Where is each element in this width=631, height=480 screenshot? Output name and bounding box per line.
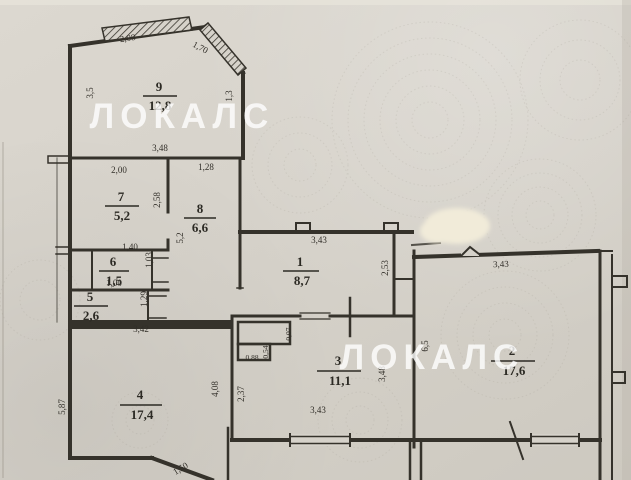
floorplan-drawing: 9 12,8 7 5,2 8 6,6 6 1,5 5 2,6 1 8,7 xyxy=(0,0,631,480)
dim-room1-right: 2,53 xyxy=(380,260,390,276)
dim-shaft-bottom: 0,88 xyxy=(245,353,258,362)
dim-room9-top: 2,08 xyxy=(119,32,136,44)
room-5-area: 2,6 xyxy=(83,308,100,323)
dim-room4-top: 3,42 xyxy=(133,324,149,334)
dim-room8-left: 5,2 xyxy=(175,232,185,243)
dim-room7-right: 2,58 xyxy=(152,192,162,208)
room-1-area: 8,7 xyxy=(294,273,311,288)
room-1-label: 1 8,7 xyxy=(283,254,319,288)
window-hatch-top xyxy=(102,17,192,41)
dim-room9-chamfer: 1,70 xyxy=(191,39,210,55)
room-4-area: 17,4 xyxy=(131,407,154,422)
watermark-bottom: ЛОКАЛС xyxy=(340,338,525,377)
room-7-area: 5,2 xyxy=(114,208,130,223)
floorplan-scan: 9 12,8 7 5,2 8 6,6 6 1,5 5 2,6 1 8,7 xyxy=(0,0,631,480)
watermark-top: ЛОКАЛС xyxy=(90,97,275,136)
dim-room5-right: 1,29 xyxy=(139,291,149,307)
dim-room4-left: 5,87 xyxy=(57,399,67,415)
room-7-label: 7 5,2 xyxy=(105,189,139,223)
room-8-number: 8 xyxy=(197,201,204,216)
room-4-label: 4 17,4 xyxy=(120,387,162,422)
dim-room4-right: 4,08 xyxy=(210,381,220,397)
room-1-number: 1 xyxy=(297,254,304,269)
whiteout-mark xyxy=(420,208,490,244)
dim-room4-diagonal: 1,50 xyxy=(171,460,190,477)
dim-room1-top: 3,43 xyxy=(311,235,327,245)
dim-shaft-mid: 0,54 xyxy=(261,345,270,358)
dim-room2-top: 3,43 xyxy=(493,259,510,270)
dim-room5-top: 1,00 xyxy=(106,278,122,288)
room-4-number: 4 xyxy=(137,387,144,402)
dim-room7-top: 2,00 xyxy=(111,165,127,175)
dim-room6-right: 1,03 xyxy=(144,252,154,268)
room-8-label: 8 6,6 xyxy=(184,201,216,235)
dim-room3-bottom: 3,43 xyxy=(310,405,326,415)
dim-room3-left: 2,37 xyxy=(236,386,246,402)
room-6-number: 6 xyxy=(110,254,117,269)
room-7-number: 7 xyxy=(118,189,125,204)
room-5-label: 5 2,6 xyxy=(74,289,108,323)
dim-room8-top: 1,28 xyxy=(198,162,214,172)
room-9-number: 9 xyxy=(156,79,163,94)
room-8-area: 6,6 xyxy=(192,220,209,235)
shaft-box-large xyxy=(238,322,290,344)
dim-shaft-right: 0,07 xyxy=(284,327,293,340)
room-5-number: 5 xyxy=(87,289,94,304)
dim-room6-top: 1,40 xyxy=(122,242,138,252)
dim-room9-bottom: 3,48 xyxy=(152,143,168,153)
